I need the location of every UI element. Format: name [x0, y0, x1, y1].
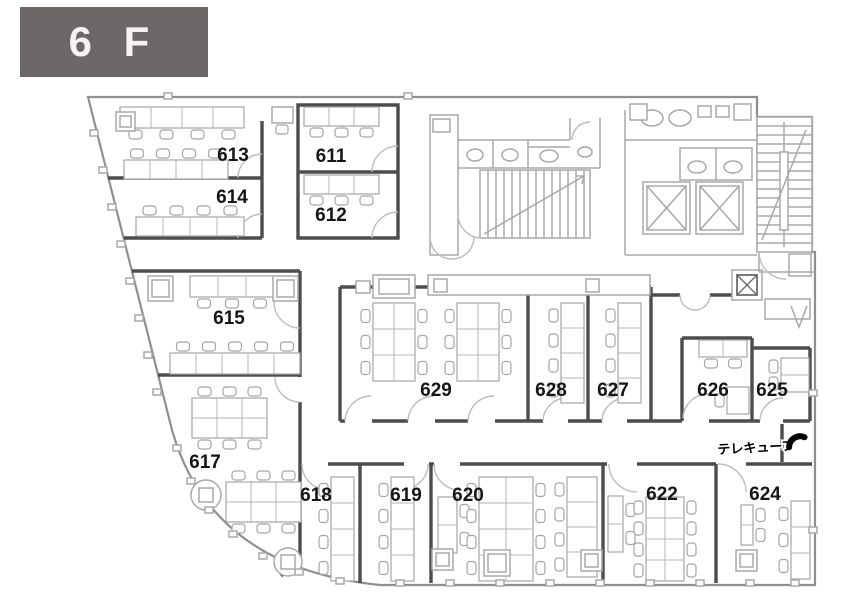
room-label-629: 629 — [420, 380, 452, 401]
floor-plan-page: 6 F — [0, 0, 846, 596]
room-label-614: 614 — [216, 187, 248, 208]
room-label-628: 628 — [535, 380, 567, 401]
room-label-617: 617 — [189, 452, 221, 473]
room-label-620: 620 — [452, 485, 484, 506]
room-label-612: 612 — [315, 205, 347, 226]
room-label-624: 624 — [749, 484, 781, 505]
elevator-1 — [643, 182, 690, 234]
room-label-625: 625 — [756, 380, 788, 401]
room-label-613: 613 — [217, 145, 249, 166]
column-x-box — [732, 270, 762, 300]
stairs-top-center — [480, 170, 590, 238]
elevator-2 — [696, 182, 743, 234]
room-label-627: 627 — [597, 380, 629, 401]
telecube-annotation: テレキューブ — [717, 434, 805, 458]
stairs-top-right — [757, 117, 812, 276]
room-label-622: 622 — [646, 484, 678, 505]
room-label-611: 611 — [316, 146, 347, 167]
floor-plan-svg: 611 612 613 614 615 617 618 619 620 622 … — [0, 0, 846, 596]
room-label-618: 618 — [300, 485, 332, 506]
phone-icon — [789, 434, 805, 450]
room-label-619: 619 — [390, 485, 422, 506]
room-label-615: 615 — [213, 308, 245, 329]
room-label-626: 626 — [697, 380, 729, 401]
